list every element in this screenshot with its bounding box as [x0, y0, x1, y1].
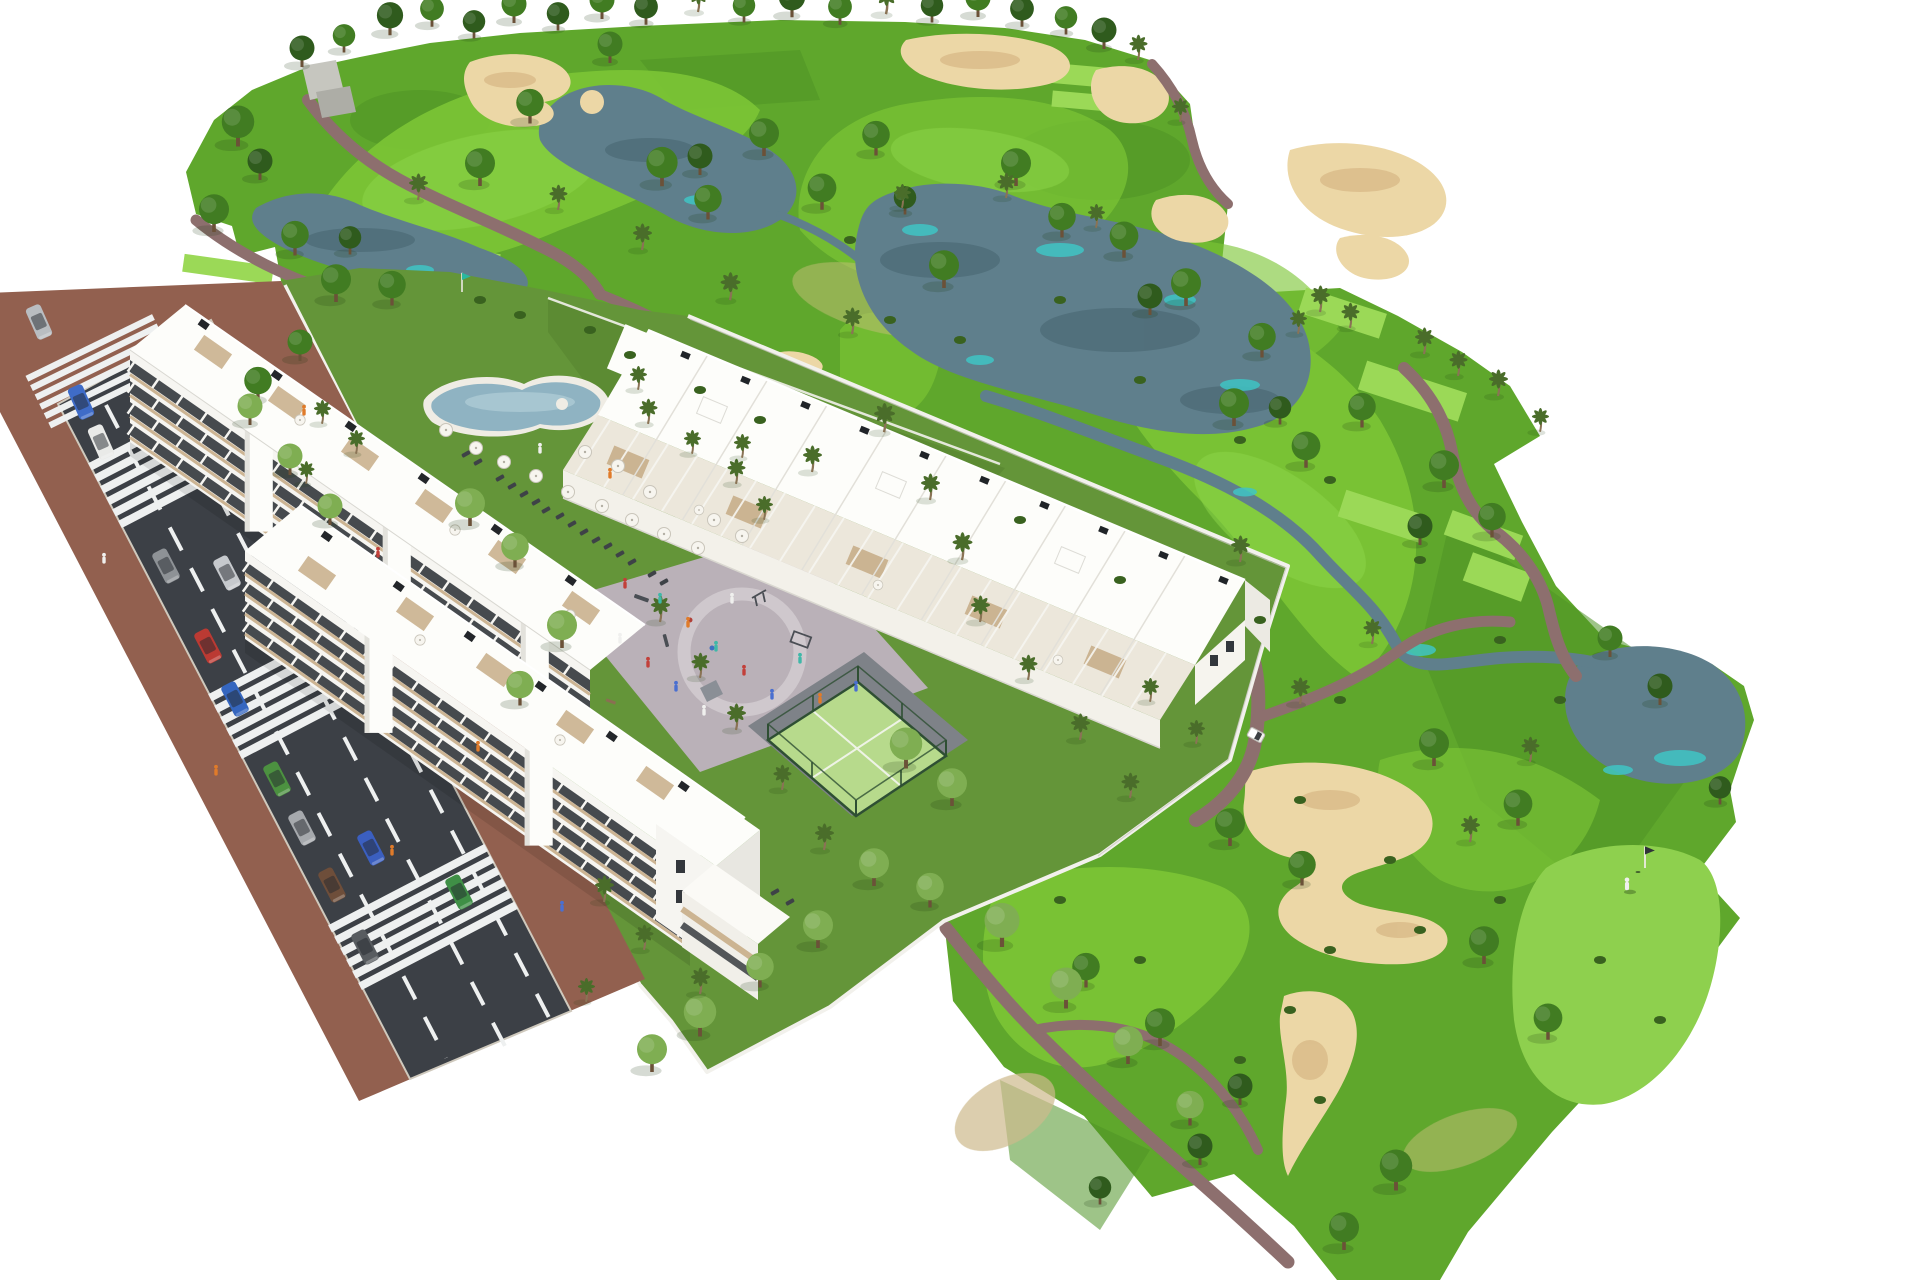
pool-island: [556, 398, 568, 410]
render-stage: [0, 0, 1920, 1280]
aerial-render: [0, 0, 1920, 1280]
lower-right-green: [1512, 845, 1720, 1105]
